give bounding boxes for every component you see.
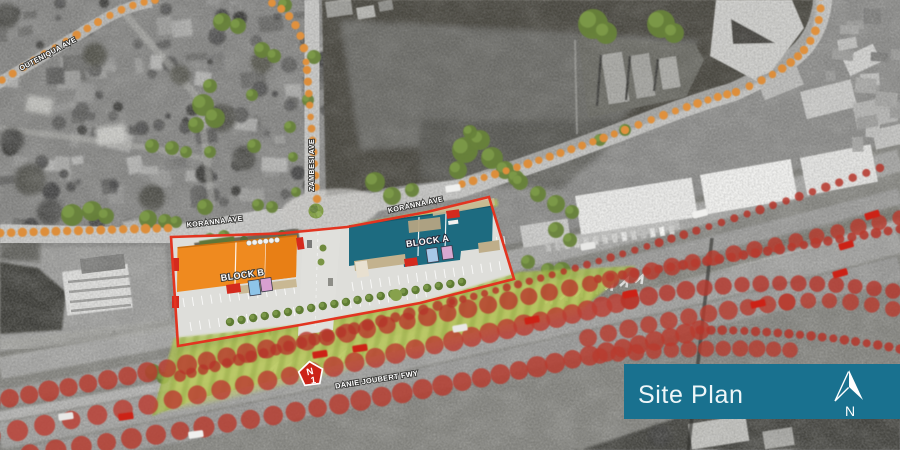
svg-text:Site Plan: Site Plan bbox=[638, 381, 743, 409]
svg-text:N: N bbox=[845, 403, 855, 419]
svg-text:ZAMBESI AVE: ZAMBESI AVE bbox=[307, 139, 316, 191]
